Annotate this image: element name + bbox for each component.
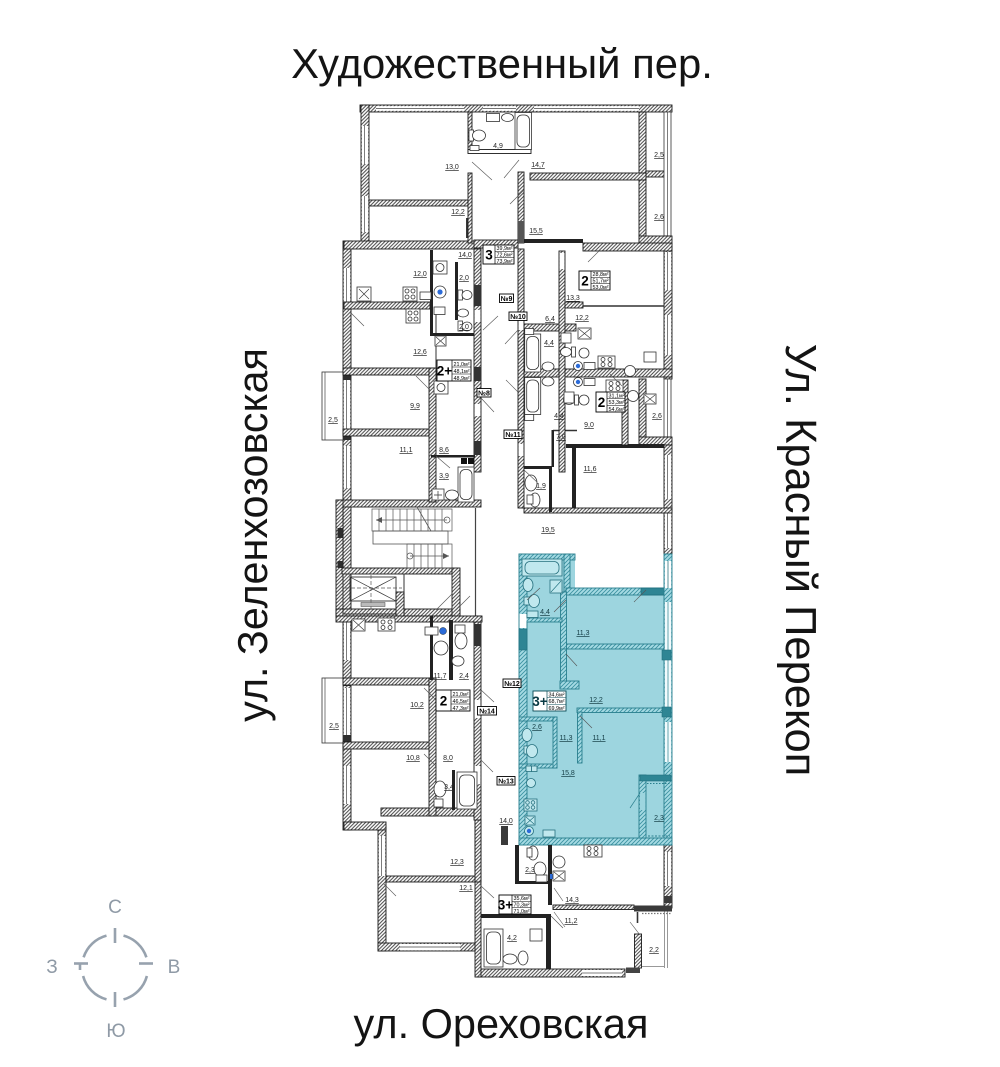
svg-text:46,5м²: 46,5м²	[453, 699, 469, 705]
svg-text:14,0: 14,0	[499, 818, 513, 825]
svg-text:11,1: 11,1	[399, 447, 412, 454]
svg-text:3+: 3+	[532, 694, 548, 709]
svg-text:ул. Ореховская: ул. Ореховская	[354, 1000, 649, 1047]
svg-text:9,0: 9,0	[584, 422, 594, 429]
svg-text:3: 3	[485, 247, 493, 262]
svg-text:71,0м²: 71,0м²	[514, 909, 530, 915]
svg-text:19,5: 19,5	[541, 527, 555, 534]
svg-text:2,4: 2,4	[459, 673, 469, 680]
svg-text:13,3: 13,3	[566, 295, 580, 302]
svg-text:13,0: 13,0	[445, 164, 459, 171]
svg-text:48,1м²: 48,1м²	[454, 369, 470, 375]
svg-text:2,0: 2,0	[459, 324, 469, 331]
svg-text:11,7: 11,7	[433, 673, 446, 680]
svg-text:7,0: 7,0	[556, 434, 566, 441]
svg-text:11,2: 11,2	[564, 918, 577, 925]
svg-text:21,0м²: 21,0м²	[454, 362, 470, 368]
svg-text:68,7м²: 68,7м²	[549, 699, 565, 705]
svg-text:2,6: 2,6	[532, 724, 542, 731]
svg-text:2,3: 2,3	[525, 867, 535, 874]
svg-text:4,2: 4,2	[507, 935, 517, 942]
svg-text:4,4: 4,4	[540, 609, 550, 616]
svg-text:11,1: 11,1	[592, 735, 605, 742]
svg-text:12,3: 12,3	[450, 859, 464, 866]
svg-text:12,2: 12,2	[451, 209, 465, 216]
svg-text:11,3: 11,3	[559, 735, 572, 742]
svg-text:12,0: 12,0	[413, 271, 427, 278]
svg-text:4,4: 4,4	[554, 413, 564, 420]
svg-text:3+: 3+	[498, 897, 514, 912]
svg-text:34,6м²: 34,6м²	[549, 693, 565, 699]
svg-text:12,2: 12,2	[575, 315, 589, 322]
svg-text:47,3м²: 47,3м²	[453, 706, 469, 712]
svg-text:12,6: 12,6	[413, 349, 427, 356]
svg-text:10,8: 10,8	[406, 755, 420, 762]
svg-text:11,3: 11,3	[576, 630, 589, 637]
svg-text:12,1: 12,1	[459, 885, 473, 892]
svg-text:51,7м²: 51,7м²	[593, 279, 609, 285]
svg-text:В: В	[168, 957, 181, 978]
svg-text:14,0: 14,0	[458, 252, 472, 259]
svg-text:31,1м²: 31,1м²	[609, 394, 625, 400]
svg-text:1,9: 1,9	[536, 483, 546, 490]
svg-text:2,3: 2,3	[654, 815, 664, 822]
svg-text:2,0: 2,0	[459, 275, 469, 282]
svg-text:2,2: 2,2	[649, 947, 659, 954]
svg-text:72,6м²: 72,6м²	[497, 253, 513, 259]
svg-text:8,0: 8,0	[443, 755, 453, 762]
svg-text:3,9: 3,9	[439, 473, 449, 480]
svg-text:С: С	[108, 897, 122, 918]
svg-text:Художественный пер.: Художественный пер.	[291, 40, 713, 87]
svg-text:15,8: 15,8	[561, 770, 575, 777]
svg-text:З: З	[46, 957, 57, 978]
svg-text:№13: №13	[498, 777, 514, 785]
svg-text:15,5: 15,5	[529, 228, 543, 235]
svg-text:39,9м²: 39,9м²	[497, 246, 513, 252]
svg-text:№12: №12	[504, 680, 520, 688]
svg-text:2,5: 2,5	[329, 723, 339, 730]
svg-text:54,6м²: 54,6м²	[609, 407, 625, 413]
svg-text:№14: №14	[479, 707, 495, 715]
svg-text:70,3м²: 70,3м²	[514, 903, 530, 909]
svg-text:2,5: 2,5	[654, 152, 664, 159]
svg-text:№9: №9	[501, 295, 513, 303]
svg-text:14,7: 14,7	[531, 162, 545, 169]
svg-text:№8: №8	[478, 389, 490, 397]
svg-text:3,4: 3,4	[444, 784, 454, 791]
svg-text:№10: №10	[510, 313, 526, 321]
svg-text:28,8м²: 28,8м²	[593, 272, 609, 278]
svg-text:2+: 2+	[437, 363, 453, 378]
svg-text:14,3: 14,3	[565, 897, 579, 904]
svg-text:48,9м²: 48,9м²	[454, 376, 470, 382]
svg-text:2: 2	[598, 395, 606, 410]
svg-text:73,9м²: 73,9м²	[497, 259, 513, 265]
svg-text:2,5: 2,5	[328, 417, 338, 424]
svg-text:Ю: Ю	[106, 1021, 125, 1042]
svg-text:2: 2	[440, 693, 448, 708]
svg-text:4,9: 4,9	[493, 143, 503, 150]
svg-text:6,4: 6,4	[545, 316, 555, 323]
svg-text:21,0м²: 21,0м²	[453, 692, 469, 698]
svg-text:10,2: 10,2	[410, 702, 424, 709]
svg-text:2,6: 2,6	[654, 214, 664, 221]
svg-text:9,9: 9,9	[410, 403, 420, 410]
svg-text:4,4: 4,4	[544, 340, 554, 347]
svg-text:69,9м²: 69,9м²	[549, 706, 565, 712]
svg-text:35,6м²: 35,6м²	[514, 896, 530, 902]
svg-text:Ул. Красный Перекоп: Ул. Красный Перекоп	[776, 344, 824, 777]
svg-text:№11: №11	[505, 431, 520, 439]
svg-text:12,2: 12,2	[589, 697, 603, 704]
svg-text:ул. Зеленхозовская: ул. Зеленхозовская	[230, 348, 276, 722]
svg-text:8,6: 8,6	[439, 447, 449, 454]
svg-text:11,6: 11,6	[583, 466, 596, 473]
svg-text:53,0м²: 53,0м²	[593, 285, 609, 291]
svg-text:2,6: 2,6	[652, 413, 662, 420]
svg-text:53,3м²: 53,3м²	[609, 400, 625, 406]
svg-text:2: 2	[581, 273, 589, 288]
